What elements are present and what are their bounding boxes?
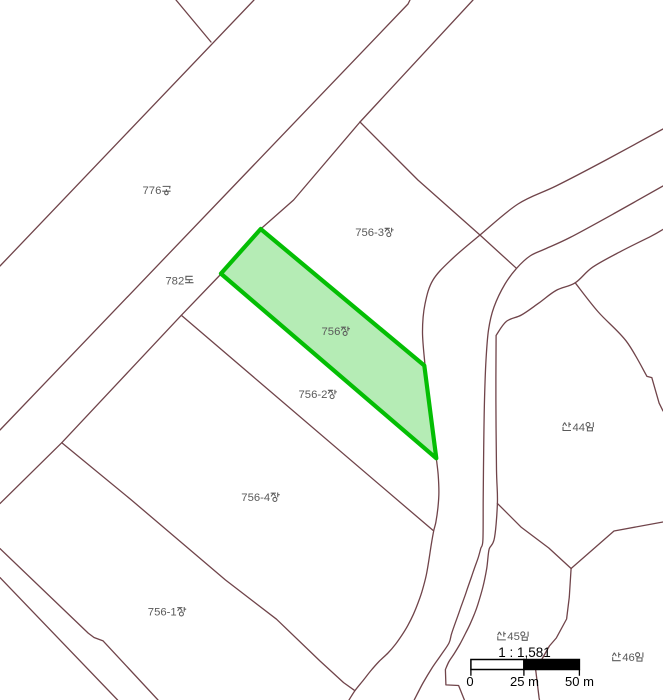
svg-text:756: 756 [322, 326, 341, 338]
svg-text:45: 45 [507, 631, 520, 643]
svg-text:50 m: 50 m [565, 674, 594, 689]
svg-text:756-3: 756-3 [355, 227, 384, 239]
svg-text:782: 782 [165, 275, 184, 287]
svg-text:756-2: 756-2 [299, 389, 328, 401]
svg-text:756-4: 756-4 [241, 492, 270, 504]
svg-text:1 : 1,581: 1 : 1,581 [498, 645, 551, 660]
svg-text:0: 0 [466, 674, 473, 689]
svg-text:776: 776 [143, 185, 162, 197]
svg-text:44: 44 [573, 422, 586, 434]
svg-text:25 m: 25 m [510, 674, 539, 689]
svg-text:46: 46 [622, 652, 635, 664]
svg-text:756-1: 756-1 [148, 607, 177, 619]
